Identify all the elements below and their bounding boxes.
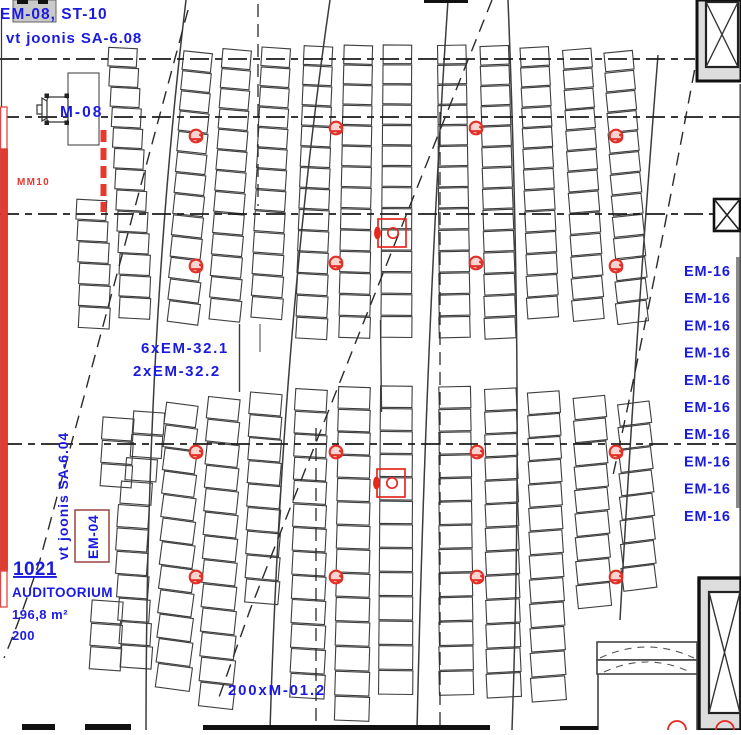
svg-text:EM-16: EM-16 <box>684 482 731 498</box>
svg-text:EM-16: EM-16 <box>684 427 731 443</box>
svg-text:AUDITOORIUM: AUDITOORIUM <box>12 585 113 600</box>
svg-text:196,8 m²: 196,8 m² <box>12 607 68 622</box>
svg-text:vt joonis SA-6.04: vt joonis SA-6.04 <box>55 432 71 560</box>
svg-text:MM10: MM10 <box>17 177 50 188</box>
svg-text:EM-04: EM-04 <box>85 515 101 559</box>
svg-text:EM-16: EM-16 <box>684 373 731 389</box>
svg-text:EM-08, ST-10: EM-08, ST-10 <box>0 6 108 23</box>
svg-text:EM-16: EM-16 <box>684 509 731 525</box>
svg-text:EM-16: EM-16 <box>684 291 731 307</box>
svg-text:200: 200 <box>12 628 35 643</box>
svg-text:6xEM-32.1: 6xEM-32.1 <box>141 340 229 357</box>
svg-text:EM-16: EM-16 <box>684 264 731 280</box>
svg-text:1021: 1021 <box>13 559 57 580</box>
svg-text:vt joonis SA-6.08: vt joonis SA-6.08 <box>6 30 142 47</box>
svg-text:2xEM-32.2: 2xEM-32.2 <box>133 363 221 380</box>
svg-text:200xM-01.2: 200xM-01.2 <box>228 682 326 699</box>
svg-text:EM-16: EM-16 <box>684 346 731 362</box>
svg-text:EM-16: EM-16 <box>684 454 731 470</box>
svg-text:EM-16: EM-16 <box>684 400 731 416</box>
svg-text:EM-16: EM-16 <box>684 318 731 334</box>
svg-text:M-08: M-08 <box>60 104 103 121</box>
